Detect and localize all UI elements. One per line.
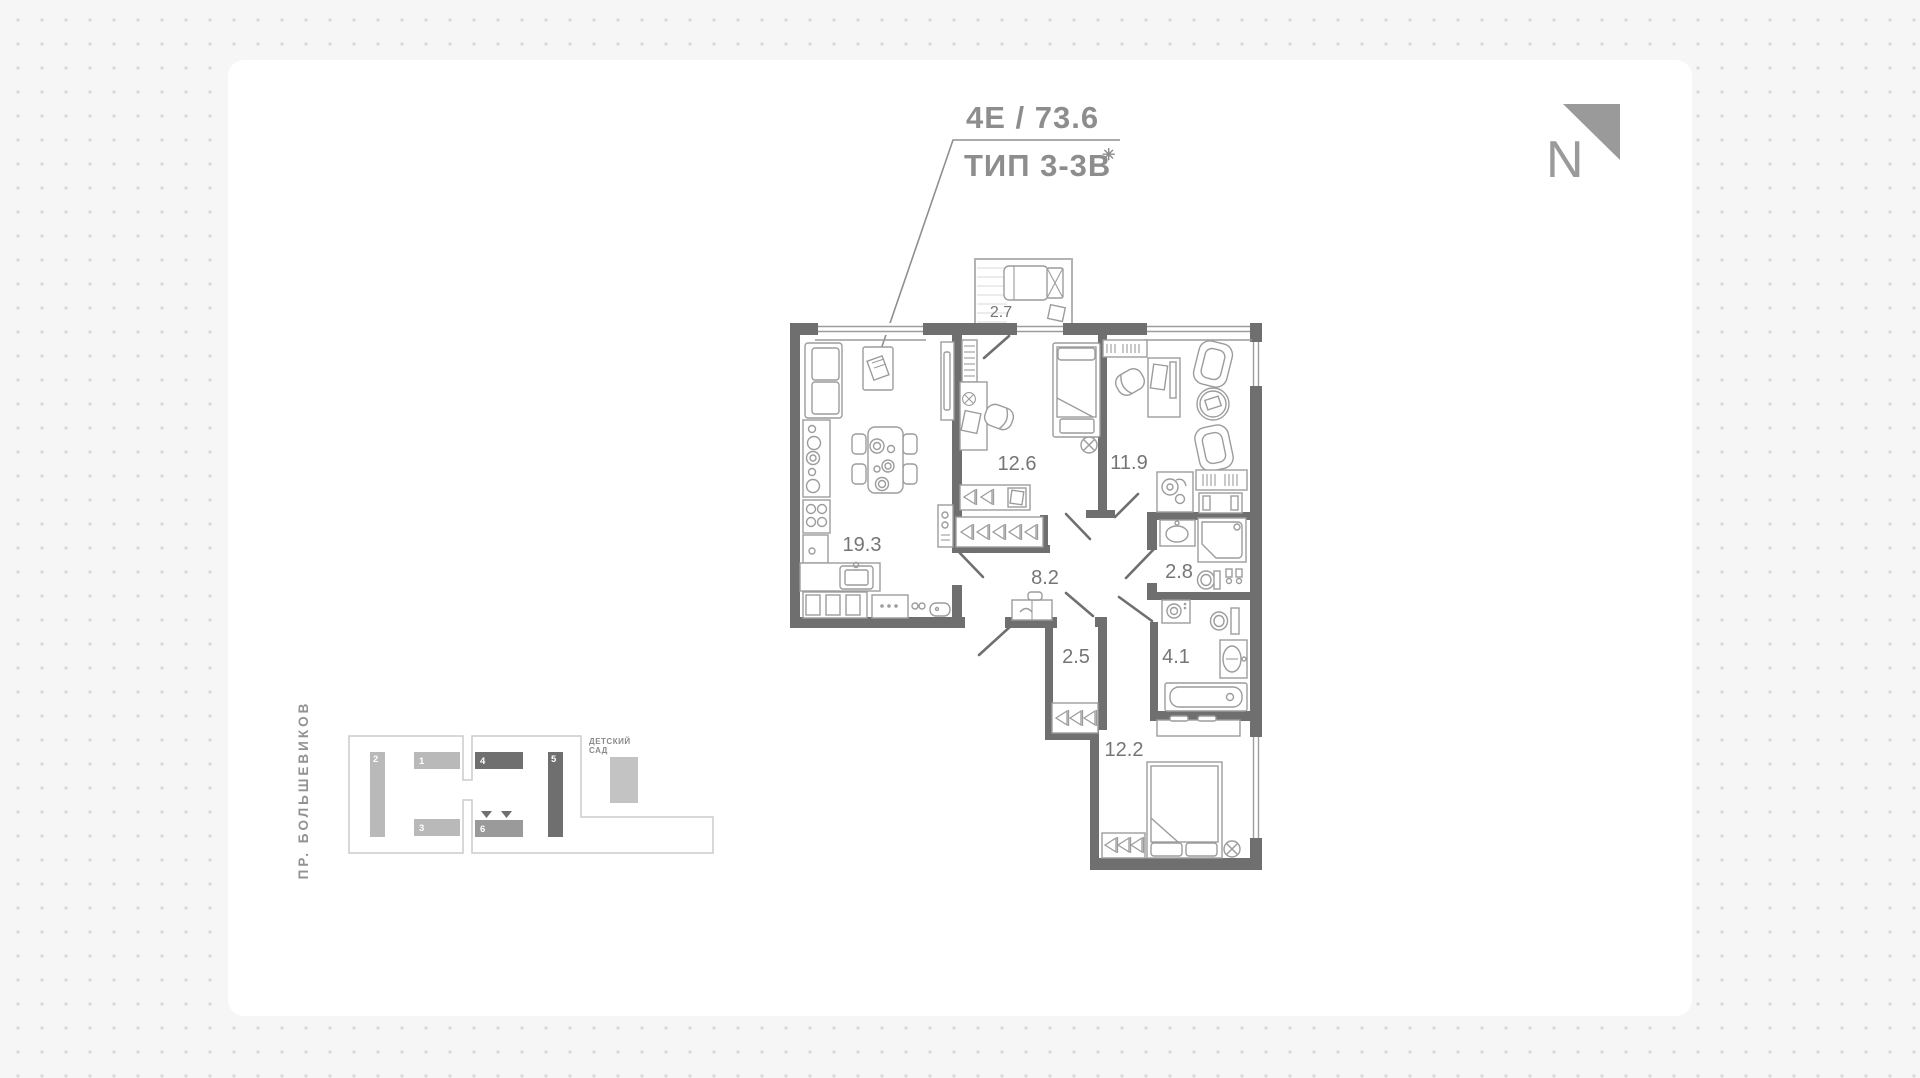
armchair [1193,423,1235,473]
north-arrow-icon: N [1546,104,1620,189]
toilet [1211,608,1240,634]
bed-single [1053,343,1100,437]
shoe-cabinet [1012,592,1052,620]
towel-hooks [1226,569,1242,584]
building-6-number: 6 [480,824,485,835]
desk [960,382,987,450]
room-label-bedroom-1: 12.6 [998,453,1037,475]
kindergarten-label-line2: САД [589,746,608,755]
counter-jars [938,505,953,547]
dresser-low [1196,470,1247,490]
corridor-closet [1052,703,1098,733]
street-label: ПР. БОЛЬШЕВИКОВ [296,701,311,880]
shower [1198,518,1246,562]
hallway-furniture [1012,592,1052,620]
kindergarten-building [610,757,638,803]
desk [1148,358,1180,417]
kitchen-fixtures [803,420,830,563]
building-1-number: 1 [419,756,425,767]
room-label-bedroom-3: 12.2 [1105,739,1144,761]
lounge-chair [1004,266,1063,300]
furniture-kitchen-living [800,342,954,618]
building-4-number: 4 [480,756,486,767]
building-3-number: 3 [419,823,424,834]
type-mark: ✳ [1102,147,1115,164]
canvas: 4Е / 73.6 ТИП 3-3В ✳ N [0,0,1920,1078]
bathtub [1165,683,1247,711]
appliance-row [803,592,950,618]
desk-chair [1112,365,1147,398]
room-label-hallway: 8.2 [1031,567,1059,589]
vacuum-closet [1157,472,1193,512]
room-label-bathroom-2: 4.1 [1162,646,1190,668]
wardrobe-rail [962,340,977,382]
kindergarten-label-line1: ДЕТСКИЙ [589,737,631,746]
room-label-wardrobe: 2.5 [1062,646,1090,668]
bed-double [1147,762,1222,858]
room-label-bathroom-1: 2.8 [1165,561,1193,583]
stove [803,500,830,533]
radiator-icon [1224,841,1240,857]
sink [1160,520,1195,546]
dining-set [852,427,917,493]
radiator-icon [1081,437,1097,453]
site-outline [349,736,713,853]
room-label-kitchen-living: 19.3 [843,534,882,556]
furniture-bedroom-1 [956,340,1100,547]
room-label-bedroom-2: 11.9 [1110,452,1147,474]
round-table [1197,388,1229,420]
armchair [1191,339,1235,390]
floorplan-svg: 4Е / 73.6 ТИП 3-3В ✳ N [0,0,1920,1078]
bench [1199,493,1242,513]
closet [1102,833,1145,858]
building-5-number: 5 [551,754,557,765]
room-label-balcony: 2.7 [990,304,1012,321]
furniture-bedroom-2 [1103,339,1247,513]
sink-counter [800,563,880,592]
building-2-number: 2 [373,754,378,765]
closet-lower [956,517,1043,547]
type-title: ТИП 3-3В [964,148,1111,183]
dresser-top [1103,340,1147,357]
closet-upper [960,485,1030,510]
toilet [1198,571,1221,589]
washing-machine [1162,600,1190,623]
balcony-table [1048,305,1066,322]
unit-area-title: 4Е / 73.6 [966,100,1099,135]
site-plan: ПР. БОЛЬШЕВИКОВ 2 1 3 4 5 6 ДЕТСКИЙ САД [296,701,713,880]
coffee-table [863,347,893,390]
tv-panel [941,342,954,420]
furniture-bedroom-3 [1102,716,1240,858]
north-letter: N [1546,131,1584,189]
sink [1220,640,1247,678]
